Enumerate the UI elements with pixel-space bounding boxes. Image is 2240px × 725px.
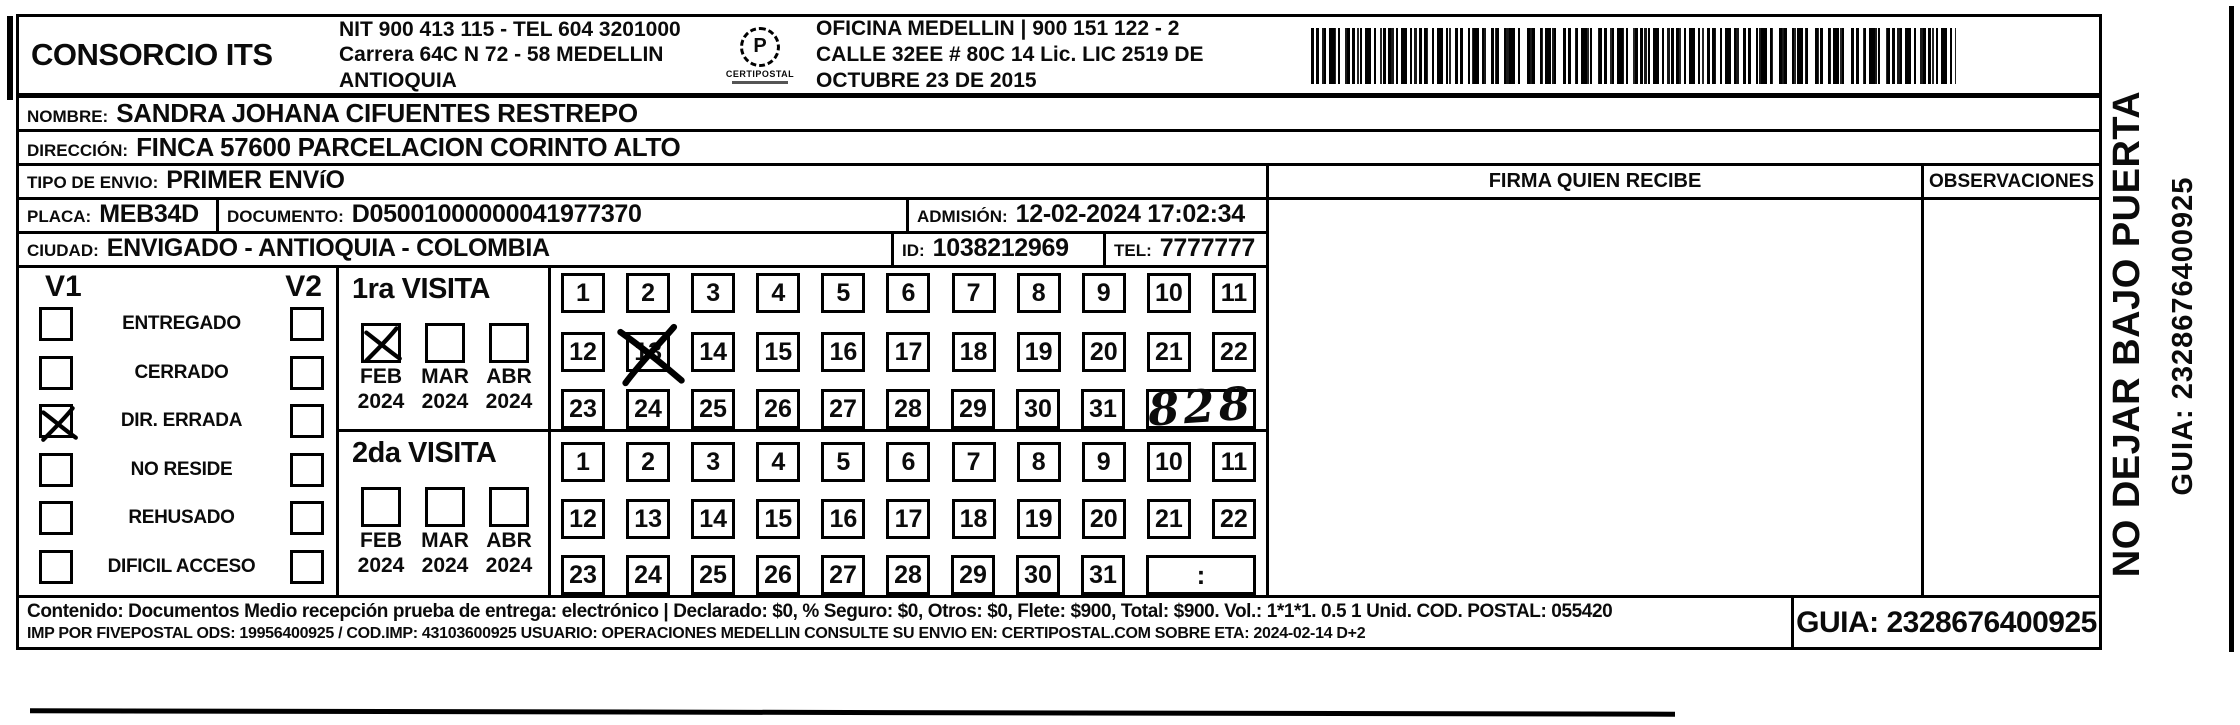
day-checkbox-12: 12 bbox=[561, 499, 605, 539]
day-checkbox-24: 24 bbox=[626, 555, 670, 595]
month-label: FEB bbox=[360, 366, 402, 388]
day-checkbox-23: 23 bbox=[561, 555, 605, 595]
observaciones-area bbox=[1924, 200, 2099, 595]
footer-content-line: Contenido: Documentos Medio recepción pr… bbox=[27, 601, 1791, 623]
day-checkbox-27: 27 bbox=[821, 555, 865, 595]
checkbox-month-feb bbox=[361, 487, 401, 527]
day-checkbox-29: 29 bbox=[951, 389, 995, 429]
office-line: OFICINA MEDELLIN | 900 151 122 - 2 bbox=[816, 16, 1311, 42]
direccion-value: FINCA 57600 PARCELACION CORINTO ALTO bbox=[136, 132, 680, 163]
day-checkbox-19: 19 bbox=[1017, 332, 1061, 372]
checkbox-v2-entregado bbox=[290, 307, 324, 341]
handwritten-number-box: 828 bbox=[1146, 389, 1256, 429]
direccion-label: DIRECCIÓN: bbox=[27, 141, 128, 161]
status-label: REHUSADO bbox=[73, 507, 290, 529]
visit-2-box: 2da VISITA FEB2024MAR2024ABR2024 bbox=[339, 432, 548, 595]
status-row: ENTREGADO bbox=[19, 300, 336, 349]
company-contact: NIT 900 413 115 - TEL 604 3201000 Carrer… bbox=[339, 17, 704, 93]
day-checkbox-17: 17 bbox=[886, 332, 930, 372]
visit-1-day-grid: 1234567891011121314151617181920212223242… bbox=[551, 268, 1266, 432]
tel-label: TEL: bbox=[1114, 241, 1152, 261]
year-label: 2024 bbox=[486, 391, 533, 413]
right-panel-header: FIRMA QUIEN RECIBE OBSERVACIONES bbox=[1269, 166, 2099, 200]
day-checkbox-18: 18 bbox=[952, 332, 996, 372]
day-grid-row: 1234567891011 bbox=[561, 273, 1256, 313]
placa-value: MEB34D bbox=[99, 200, 199, 229]
day-checkbox-15: 15 bbox=[756, 332, 800, 372]
day-checkbox-19: 19 bbox=[1017, 499, 1061, 539]
tipo-envio-label: TIPO DE ENVIO: bbox=[27, 173, 158, 193]
form-header: CONSORCIO ITS NIT 900 413 115 - TEL 604 … bbox=[19, 17, 2099, 98]
day-checkbox-31: 31 bbox=[1081, 389, 1125, 429]
checkbox-v2-cerrado bbox=[290, 356, 324, 390]
day-checkbox-12: 12 bbox=[561, 332, 605, 372]
documento-value: D05001000000041977370 bbox=[352, 200, 642, 229]
admision-cell: ADMISIÓN: 12-02-2024 17:02:34 bbox=[909, 200, 1266, 231]
year-label: 2024 bbox=[486, 555, 533, 577]
day-checkbox-26: 26 bbox=[756, 555, 800, 595]
day-checkbox-28: 28 bbox=[886, 555, 930, 595]
day-checkbox-1: 1 bbox=[561, 442, 605, 482]
footer-imp-line: IMP POR FIVEPOSTAL ODS: 19956400925 / CO… bbox=[27, 625, 1791, 643]
checkbox-v1-dir-errada bbox=[39, 404, 73, 438]
month-option: ABR2024 bbox=[480, 487, 538, 577]
admision-value: 12-02-2024 17:02:34 bbox=[1016, 200, 1245, 229]
checkbox-v2-rehusado bbox=[290, 501, 324, 535]
month-option: MAR2024 bbox=[416, 487, 474, 577]
month-option: MAR2024 bbox=[416, 323, 474, 413]
status-row: REHUSADO bbox=[19, 494, 336, 543]
month-label: FEB bbox=[360, 530, 402, 552]
checkbox-month-mar bbox=[425, 323, 465, 363]
day-checkbox-10: 10 bbox=[1147, 273, 1191, 313]
visit-2-day-grid: 1234567891011121314151617181920212223242… bbox=[551, 432, 1266, 595]
status-label: CERRADO bbox=[73, 362, 290, 384]
day-checkbox-16: 16 bbox=[821, 499, 865, 539]
right-panel-body bbox=[1269, 200, 2099, 595]
day-checkbox-5: 5 bbox=[821, 273, 865, 313]
placa-cell: PLACA: MEB34D bbox=[19, 200, 219, 231]
day-checkbox-9: 9 bbox=[1082, 442, 1126, 482]
month-label: MAR bbox=[421, 366, 469, 388]
day-grid-row: 232425262728293031828 bbox=[561, 389, 1256, 429]
tel-value: 7777777 bbox=[1160, 234, 1255, 263]
day-checkbox-30: 30 bbox=[1016, 555, 1060, 595]
time-entry-box: : bbox=[1146, 555, 1256, 595]
guia-number-box: GUIA: 2328676400925 bbox=[1791, 598, 2099, 647]
tipo-envio-value: PRIMER ENVíO bbox=[166, 166, 344, 195]
visits-area: V1 V2 ENTREGADOCERRADODIR. ERRADANO RESI… bbox=[19, 268, 1266, 595]
status-row: DIFICIL ACCESO bbox=[19, 543, 336, 592]
day-checkbox-14: 14 bbox=[691, 332, 735, 372]
status-label: ENTREGADO bbox=[73, 313, 290, 335]
day-checkbox-22: 22 bbox=[1212, 499, 1256, 539]
year-label: 2024 bbox=[422, 391, 469, 413]
day-checkbox-20: 20 bbox=[1082, 499, 1126, 539]
day-checkbox-10: 10 bbox=[1147, 442, 1191, 482]
day-checkbox-7: 7 bbox=[952, 273, 996, 313]
placa-label: PLACA: bbox=[27, 207, 91, 227]
checkbox-v2-dificil-acceso bbox=[290, 550, 324, 584]
day-checkbox-28: 28 bbox=[886, 389, 930, 429]
checkbox-v1-dificil-acceso bbox=[39, 550, 73, 584]
company-name: CONSORCIO ITS bbox=[19, 37, 339, 73]
day-grids-column: 1234567891011121314151617181920212223242… bbox=[551, 268, 1266, 595]
tipo-envio-row: TIPO DE ENVIO: PRIMER ENVíO bbox=[19, 166, 1266, 200]
day-grid-row: 1213141516171819202122 bbox=[561, 499, 1256, 539]
delivery-form: CONSORCIO ITS NIT 900 413 115 - TEL 604 … bbox=[16, 14, 2102, 650]
day-checkbox-3: 3 bbox=[691, 442, 735, 482]
admision-label: ADMISIÓN: bbox=[917, 207, 1008, 227]
day-checkbox-13: 13 bbox=[626, 499, 670, 539]
time-separator: : bbox=[1197, 560, 1206, 591]
checkbox-v1-rehusado bbox=[39, 501, 73, 535]
placa-documento-row: PLACA: MEB34D DOCUMENTO: D05001000000041… bbox=[19, 200, 1266, 234]
no-dejar-bajo-puerta-vertical-label: NO DEJAR BAJO PUERTA bbox=[2106, 54, 2154, 614]
visit-1-months: FEB2024MAR2024ABR2024 bbox=[352, 323, 548, 413]
day-checkbox-25: 25 bbox=[691, 389, 735, 429]
checkbox-v2-no-reside bbox=[290, 453, 324, 487]
ciudad-id-tel-row: CIUDAD: ENVIGADO - ANTIOQUIA - COLOMBIA … bbox=[19, 234, 1266, 268]
visit-2-title: 2da VISITA bbox=[352, 432, 548, 470]
status-row: DIR. ERRADA bbox=[19, 397, 336, 446]
day-checkbox-2: 2 bbox=[626, 273, 670, 313]
day-checkbox-4: 4 bbox=[756, 273, 800, 313]
day-grid-row: 232425262728293031: bbox=[561, 555, 1256, 595]
scan-corner-artifact bbox=[7, 16, 13, 100]
logo-text: CERTIPOSTAL bbox=[726, 69, 794, 79]
day-checkbox-21: 21 bbox=[1147, 499, 1191, 539]
day-checkbox-7: 7 bbox=[952, 442, 996, 482]
nombre-value: SANDRA JOHANA CIFUENTES RESTREPO bbox=[116, 98, 638, 129]
logo-subtext-bar bbox=[732, 81, 788, 84]
firma-header: FIRMA QUIEN RECIBE bbox=[1269, 166, 1924, 197]
day-checkbox-3: 3 bbox=[691, 273, 735, 313]
day-grid-row: 1234567891011 bbox=[561, 442, 1256, 482]
barcode bbox=[1311, 28, 1956, 84]
left-section: TIPO DE ENVIO: PRIMER ENVíO PLACA: MEB34… bbox=[19, 166, 1269, 595]
page-edge-line bbox=[2229, 6, 2234, 652]
v1-column-label: V1 bbox=[45, 270, 82, 304]
day-checkbox-23: 23 bbox=[561, 389, 605, 429]
day-checkbox-15: 15 bbox=[756, 499, 800, 539]
status-label: NO RESIDE bbox=[73, 459, 290, 481]
documento-cell: DOCUMENTO: D05001000000041977370 bbox=[219, 200, 909, 231]
checkbox-v2-dir-errada bbox=[290, 404, 324, 438]
delivery-status-box: V1 V2 ENTREGADOCERRADODIR. ERRADANO RESI… bbox=[19, 268, 339, 595]
ciudad-cell: CIUDAD: ENVIGADO - ANTIOQUIA - COLOMBIA bbox=[19, 234, 894, 265]
nombre-label: NOMBRE: bbox=[27, 107, 108, 127]
day-checkbox-21: 21 bbox=[1147, 332, 1191, 372]
logo-circle-icon: P bbox=[740, 27, 780, 67]
footer-text: Contenido: Documentos Medio recepción pr… bbox=[19, 598, 1791, 647]
office-license-line: CALLE 32EE # 80C 14 Lic. LIC 2519 DE OCT… bbox=[816, 42, 1311, 95]
visit-month-column: 1ra VISITA FEB2024MAR2024ABR2024 2da VIS… bbox=[339, 268, 551, 595]
day-checkbox-2: 2 bbox=[626, 442, 670, 482]
handwritten-x-over-day bbox=[623, 328, 679, 382]
form-footer: Contenido: Documentos Medio recepción pr… bbox=[19, 595, 2099, 647]
checkbox-month-feb bbox=[361, 323, 401, 363]
day-checkbox-1: 1 bbox=[561, 273, 605, 313]
id-cell: ID: 1038212969 bbox=[894, 234, 1106, 265]
day-checkbox-27: 27 bbox=[821, 389, 865, 429]
scanned-delivery-form: CONSORCIO ITS NIT 900 413 115 - TEL 604 … bbox=[0, 0, 2240, 725]
firma-signature-area bbox=[1269, 200, 1924, 595]
x-mark-icon bbox=[361, 323, 404, 366]
day-checkbox-17: 17 bbox=[886, 499, 930, 539]
ciudad-label: CIUDAD: bbox=[27, 241, 99, 261]
x-mark-icon bbox=[38, 403, 80, 445]
company-nit-line: NIT 900 413 115 - TEL 604 3201000 bbox=[339, 17, 704, 42]
day-checkbox-8: 8 bbox=[1017, 442, 1061, 482]
day-checkbox-31: 31 bbox=[1081, 555, 1125, 595]
nombre-row: NOMBRE: SANDRA JOHANA CIFUENTES RESTREPO bbox=[19, 98, 2099, 132]
certipostal-logo-icon: P CERTIPOSTAL bbox=[704, 27, 816, 84]
day-checkbox-18: 18 bbox=[952, 499, 996, 539]
day-checkbox-8: 8 bbox=[1017, 273, 1061, 313]
day-checkbox-6: 6 bbox=[886, 442, 930, 482]
visit-1-title: 1ra VISITA bbox=[352, 268, 548, 306]
month-label: MAR bbox=[421, 530, 469, 552]
day-checkbox-13: 13 bbox=[626, 332, 670, 372]
month-label: ABR bbox=[486, 530, 532, 552]
day-checkbox-24: 24 bbox=[626, 389, 670, 429]
month-option: ABR2024 bbox=[480, 323, 538, 413]
status-header: V1 V2 bbox=[19, 268, 336, 300]
month-option: FEB2024 bbox=[352, 487, 410, 577]
checkbox-month-abr bbox=[489, 487, 529, 527]
office-info: OFICINA MEDELLIN | 900 151 122 - 2 CALLE… bbox=[816, 16, 1311, 95]
day-checkbox-22: 22 bbox=[1212, 332, 1256, 372]
visit-2-months: FEB2024MAR2024ABR2024 bbox=[352, 487, 548, 577]
v2-column-label: V2 bbox=[285, 270, 322, 304]
scan-bottom-line bbox=[30, 708, 1675, 716]
year-label: 2024 bbox=[358, 391, 405, 413]
day-checkbox-25: 25 bbox=[691, 555, 735, 595]
id-value: 1038212969 bbox=[933, 234, 1069, 263]
month-label: ABR bbox=[486, 366, 532, 388]
day-checkbox-5: 5 bbox=[821, 442, 865, 482]
observaciones-header: OBSERVACIONES bbox=[1924, 166, 2099, 197]
status-row: CERRADO bbox=[19, 349, 336, 398]
company-address-line: Carrera 64C N 72 - 58 MEDELLIN ANTIOQUIA bbox=[339, 42, 704, 92]
day-checkbox-14: 14 bbox=[691, 499, 735, 539]
day-checkbox-29: 29 bbox=[951, 555, 995, 595]
ciudad-value: ENVIGADO - ANTIOQUIA - COLOMBIA bbox=[107, 234, 550, 263]
right-section: FIRMA QUIEN RECIBE OBSERVACIONES bbox=[1269, 166, 2099, 595]
checkbox-v1-entregado bbox=[39, 307, 73, 341]
day-checkbox-26: 26 bbox=[756, 389, 800, 429]
day-checkbox-9: 9 bbox=[1082, 273, 1126, 313]
status-label: DIR. ERRADA bbox=[73, 410, 290, 432]
visit-1-box: 1ra VISITA FEB2024MAR2024ABR2024 bbox=[339, 268, 548, 432]
checkbox-month-mar bbox=[425, 487, 465, 527]
documento-label: DOCUMENTO: bbox=[227, 207, 344, 227]
checkbox-month-abr bbox=[489, 323, 529, 363]
tel-cell: TEL: 7777777 bbox=[1106, 234, 1266, 265]
guia-vertical-label: GUIA: 2328676400925 bbox=[2167, 116, 2203, 556]
day-checkbox-30: 30 bbox=[1016, 389, 1060, 429]
status-row: NO RESIDE bbox=[19, 446, 336, 495]
form-main: TIPO DE ENVIO: PRIMER ENVíO PLACA: MEB34… bbox=[19, 166, 2099, 595]
day-grid-row: 1213141516171819202122 bbox=[561, 332, 1256, 372]
day-checkbox-4: 4 bbox=[756, 442, 800, 482]
day-checkbox-11: 11 bbox=[1212, 442, 1256, 482]
day-checkbox-16: 16 bbox=[821, 332, 865, 372]
handwritten-number: 828 bbox=[1148, 403, 1254, 410]
checkbox-v1-no-reside bbox=[39, 453, 73, 487]
month-option: FEB2024 bbox=[352, 323, 410, 413]
direccion-row: DIRECCIÓN: FINCA 57600 PARCELACION CORIN… bbox=[19, 132, 2099, 166]
year-label: 2024 bbox=[422, 555, 469, 577]
day-checkbox-11: 11 bbox=[1212, 273, 1256, 313]
checkbox-v1-cerrado bbox=[39, 356, 73, 390]
day-checkbox-6: 6 bbox=[886, 273, 930, 313]
year-label: 2024 bbox=[358, 555, 405, 577]
day-checkbox-20: 20 bbox=[1082, 332, 1126, 372]
id-label: ID: bbox=[902, 241, 925, 261]
status-label: DIFICIL ACCESO bbox=[73, 556, 290, 578]
